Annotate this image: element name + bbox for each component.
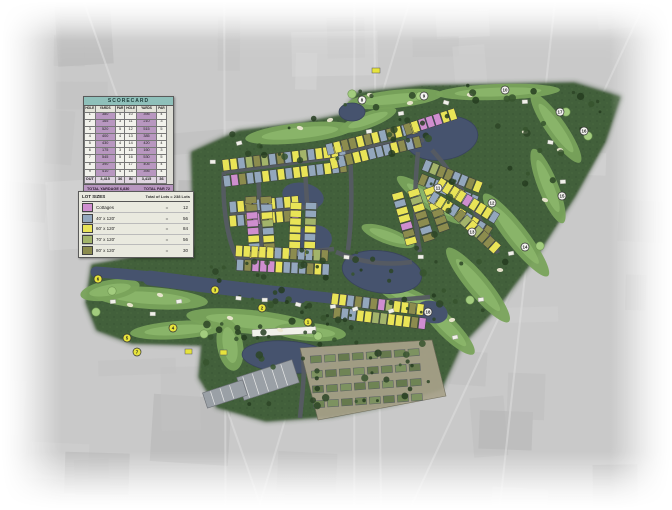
scorecard-panel: SCORECARD HOLEYARDSPARHOLEYARDSPAR138041… — [83, 96, 174, 193]
tree — [281, 153, 288, 160]
tree — [398, 118, 401, 121]
building — [366, 129, 372, 134]
tree — [541, 121, 546, 126]
tree — [258, 324, 263, 329]
scorecard-title: SCORECARD — [84, 97, 173, 106]
aerial-block — [412, 36, 459, 57]
residential-lot — [356, 310, 364, 322]
residential-lot — [354, 296, 362, 308]
scorecard-cell: 4 — [157, 163, 167, 170]
residential-lot — [291, 262, 298, 274]
residential-lot — [237, 157, 245, 169]
villa-block — [326, 384, 337, 392]
residential-lot — [305, 218, 316, 225]
tree — [526, 172, 530, 176]
tree — [288, 126, 291, 129]
residential-lot — [364, 311, 372, 323]
tree — [266, 401, 271, 406]
tree — [390, 137, 396, 143]
tree — [507, 166, 512, 171]
tree — [406, 359, 410, 363]
lot-count: 56 — [174, 237, 190, 242]
legend-rows: Cottages=1240' x 120'=5660' x 120'=8470'… — [82, 203, 190, 256]
lot-count: 84 — [174, 226, 190, 231]
legend-title: LOT SIZES — [82, 194, 105, 199]
tree — [315, 386, 321, 392]
tree — [432, 293, 436, 297]
tree — [436, 300, 443, 307]
residential-lot — [260, 196, 272, 204]
tree — [317, 342, 322, 347]
tree — [220, 322, 224, 326]
residential-lot — [305, 210, 316, 217]
tree — [389, 300, 394, 305]
residential-lot — [269, 169, 277, 181]
residential-lot — [305, 202, 316, 209]
tree — [273, 290, 278, 295]
villa-block — [352, 352, 363, 360]
building — [150, 312, 156, 316]
residential-lot — [285, 167, 293, 179]
tree — [410, 155, 413, 158]
tree — [374, 349, 381, 356]
residential-lot — [324, 163, 332, 175]
scorecard-cell: 430 — [96, 141, 116, 148]
scorecard-cell: 36 — [157, 177, 167, 184]
tree — [314, 368, 319, 373]
scorecard-cell: 5 — [85, 141, 96, 148]
scorecard-cell: 8 — [85, 163, 96, 170]
scorecard-cell: 16 — [125, 155, 136, 162]
tree — [267, 302, 273, 308]
tree — [259, 145, 262, 148]
tree — [427, 380, 430, 383]
tree — [322, 394, 329, 401]
tree — [261, 274, 267, 280]
tree — [362, 399, 366, 403]
tree — [414, 246, 419, 251]
putting-green — [200, 330, 208, 338]
building — [508, 251, 514, 256]
tree — [430, 182, 433, 185]
tree — [349, 325, 354, 330]
residential-lot — [261, 204, 273, 212]
hole-number: 14 — [523, 245, 528, 250]
scorecard-cell: 390 — [96, 163, 116, 170]
aerial-block — [276, 451, 337, 494]
scorecard-cell: 10 — [125, 113, 136, 120]
equals-sign: = — [163, 248, 171, 253]
hole-marker: 14 — [521, 243, 529, 251]
tee-box — [185, 349, 192, 354]
scorecard-cell: 4 — [157, 170, 167, 177]
tree — [399, 363, 402, 366]
hole-marker: 9 — [420, 92, 428, 100]
residential-lot — [243, 246, 250, 258]
residential-lot — [222, 159, 230, 171]
scorecard-cell: 405 — [137, 163, 157, 170]
tree — [299, 248, 304, 253]
tree — [354, 340, 358, 344]
tree — [332, 337, 337, 342]
hole-marker: 3 — [211, 286, 219, 294]
tree — [434, 260, 437, 263]
villa-block — [340, 383, 351, 391]
tree — [264, 260, 270, 266]
aerial-block — [160, 366, 201, 431]
aerial-block — [98, 358, 176, 377]
aerial-block — [593, 464, 639, 510]
residential-lot — [346, 295, 354, 307]
scorecard-cell: 385 — [137, 134, 157, 141]
scorecard-cell: 4 — [116, 141, 126, 148]
building — [478, 297, 484, 301]
tree — [335, 316, 342, 323]
scorecard-cell: 2 — [85, 120, 96, 127]
villa-block — [410, 378, 421, 386]
lot-color-swatch — [82, 224, 93, 233]
scorecard-cell: 210 — [137, 120, 157, 127]
building — [344, 255, 350, 259]
villa-block — [369, 396, 380, 404]
villa-block — [325, 369, 336, 377]
residential-lot — [293, 166, 301, 178]
tree — [489, 185, 493, 189]
tree — [256, 273, 260, 277]
hole-marker: 5 — [123, 334, 131, 342]
villa-block — [338, 353, 349, 361]
tree — [300, 310, 304, 314]
tree — [311, 116, 317, 122]
aerial-block — [452, 44, 487, 90]
tree — [261, 152, 267, 158]
lot-count: 30 — [174, 248, 190, 253]
building — [418, 255, 424, 259]
building — [398, 111, 404, 116]
residential-lot — [408, 303, 416, 315]
tree — [596, 100, 599, 103]
tree — [409, 92, 416, 99]
aerial-block — [435, 9, 489, 39]
residential-lot — [246, 212, 258, 220]
lot-size-label: 70' x 120' — [96, 237, 160, 242]
tree — [310, 397, 316, 403]
residential-lot — [403, 316, 411, 328]
residential-lot — [274, 247, 281, 259]
residential-lot — [268, 153, 276, 165]
scorecard-cell: 13 — [125, 134, 136, 141]
villa-block — [327, 399, 338, 407]
residential-lot — [300, 166, 308, 178]
tree — [403, 351, 410, 358]
scorecard-cell: 160 — [137, 148, 157, 155]
residential-lot — [245, 196, 257, 204]
residential-lot — [229, 201, 237, 213]
tree — [203, 359, 209, 365]
villa-block — [339, 368, 350, 376]
aerial-block — [625, 275, 646, 311]
aerial-block — [596, 0, 644, 30]
residential-lot — [236, 259, 243, 271]
scorecard-cell: 545 — [96, 155, 116, 162]
residential-lot — [418, 317, 426, 329]
hole-marker: 1 — [304, 318, 312, 326]
residential-lot — [248, 235, 260, 243]
tee-box — [220, 350, 227, 355]
building — [262, 298, 268, 302]
tree — [251, 259, 257, 265]
residential-lot — [304, 226, 315, 233]
scorecard-cell: 15 — [125, 148, 136, 155]
residential-lot — [316, 164, 324, 176]
putting-green — [92, 308, 100, 316]
tree — [446, 193, 454, 201]
residential-lot — [304, 234, 315, 241]
villa-block — [396, 379, 407, 387]
tree — [323, 275, 329, 281]
scorecard-cell: 3 — [116, 120, 126, 127]
scorecard-cell: 4 — [85, 134, 96, 141]
building — [210, 160, 216, 164]
tree — [241, 335, 247, 341]
aerial-block — [489, 486, 549, 510]
tree — [278, 153, 281, 156]
lot-count: 56 — [174, 216, 190, 221]
scorecard-cell: 5 — [116, 155, 126, 162]
scorecard-cell: 4 — [157, 134, 167, 141]
tree — [208, 334, 214, 340]
building — [547, 140, 553, 145]
tree — [314, 402, 321, 409]
aerial-block — [64, 452, 130, 495]
tree — [358, 90, 362, 94]
legend-header: LOT SIZES Total of Lots = 238 Lots — [82, 194, 190, 202]
villa-block — [408, 349, 419, 357]
tree — [447, 201, 450, 204]
tree — [306, 303, 312, 309]
scorecard-cell: 4 — [116, 163, 126, 170]
tree — [459, 262, 463, 266]
residential-lot — [308, 165, 316, 177]
tree — [522, 181, 525, 184]
residential-lot — [315, 148, 323, 160]
tree — [376, 399, 379, 402]
hole-marker: 4 — [169, 324, 177, 332]
residential-lot — [276, 211, 284, 223]
scorecard-cell: 11 — [125, 120, 136, 127]
residential-lot — [284, 196, 292, 208]
villa-block — [368, 381, 379, 389]
residential-lot — [254, 171, 262, 183]
aerial-block — [291, 31, 378, 77]
tree — [389, 269, 393, 273]
tree — [370, 371, 373, 374]
putting-green — [466, 296, 474, 304]
residential-lot — [237, 214, 245, 226]
residential-lot — [261, 212, 273, 220]
scorecard-cell: 530 — [137, 155, 157, 162]
scorecard-cell: 4 — [157, 113, 167, 120]
tree — [530, 88, 537, 95]
residential-lot — [372, 312, 380, 324]
tree — [355, 251, 358, 254]
residential-lot — [289, 226, 300, 233]
tree — [352, 256, 359, 263]
tree — [408, 387, 413, 392]
tree — [370, 257, 375, 262]
tree — [278, 287, 285, 294]
building — [176, 299, 182, 304]
aerial-block — [54, 35, 86, 66]
building — [236, 296, 242, 300]
tree — [222, 265, 226, 269]
hole-marker: 15 — [558, 192, 566, 200]
scorecard-total-yardage: TOTAL YARDAGE 6,830 — [87, 187, 129, 191]
legend-row: 60' x 120'=84 — [82, 224, 190, 235]
scorecard-cell: 515 — [137, 127, 157, 134]
tree — [245, 150, 251, 156]
tree — [469, 89, 476, 96]
tree — [442, 288, 446, 292]
aerial-block — [284, 494, 365, 510]
residential-lot — [370, 298, 378, 310]
tree — [335, 156, 339, 160]
residential-lot — [290, 248, 297, 260]
residential-lot — [238, 173, 246, 185]
residential-lot — [379, 313, 387, 325]
residential-lot — [362, 297, 370, 309]
residential-lot — [322, 264, 329, 276]
residential-lot — [410, 317, 418, 329]
residential-lot — [251, 246, 258, 258]
aerial-block — [218, 16, 241, 71]
tree — [388, 150, 395, 157]
residential-lot — [313, 249, 320, 261]
scorecard-cell: 18 — [125, 170, 136, 177]
residential-lot — [259, 246, 266, 258]
residential-lot — [290, 218, 301, 225]
tree — [558, 150, 565, 157]
hole-number: 12 — [490, 201, 495, 206]
hole-marker: 13 — [468, 228, 476, 236]
villa-block — [341, 398, 352, 406]
tree — [289, 318, 296, 325]
scorecard-total-par: TOTAL PAR 72 — [144, 187, 170, 191]
tree — [260, 329, 266, 335]
scorecard-cell: 4 — [116, 113, 126, 120]
residential-lot — [262, 170, 270, 182]
tree — [361, 374, 368, 381]
residential-lot — [282, 248, 289, 260]
tree — [404, 117, 410, 123]
tree — [577, 93, 584, 100]
villa-block — [381, 365, 392, 373]
tree — [495, 123, 501, 129]
tree — [369, 94, 373, 98]
residential-lot — [231, 174, 239, 186]
tree — [476, 259, 482, 265]
legend-row: Cottages=12 — [82, 203, 190, 214]
tree — [349, 314, 352, 317]
residential-lot — [289, 234, 300, 241]
tree — [247, 402, 251, 406]
scorecard-cell: 9 — [85, 170, 96, 177]
tree — [572, 91, 575, 94]
tree — [343, 103, 346, 106]
equals-sign: = — [163, 237, 171, 242]
hole-marker: 11 — [434, 184, 442, 192]
lot-color-swatch — [82, 246, 93, 255]
residential-lot — [306, 263, 313, 275]
residential-lot — [246, 204, 258, 212]
residential-lot — [245, 156, 253, 168]
tree — [203, 321, 211, 329]
tree — [369, 356, 372, 359]
building — [110, 300, 116, 304]
legend-row: 40' x 120'=56 — [82, 213, 190, 224]
tree — [420, 269, 427, 276]
scorecard-cell: 3,415 — [96, 177, 116, 184]
tree — [256, 351, 264, 359]
scorecard-cell: 3 — [157, 148, 167, 155]
tree — [420, 311, 423, 314]
residential-lot — [331, 293, 339, 305]
residential-lot — [246, 172, 254, 184]
scorecard-cell: 5 — [157, 155, 167, 162]
scorecard-cell: 7 — [85, 155, 96, 162]
residential-lot — [277, 168, 285, 180]
aerial-block — [617, 199, 668, 243]
tree — [217, 278, 222, 283]
scorecard-cell: 6 — [85, 148, 96, 155]
residential-lot — [377, 299, 385, 311]
tree — [301, 357, 305, 361]
residential-lot — [230, 158, 238, 170]
aerial-block — [0, 180, 48, 223]
scorecard-cell: 175 — [96, 148, 116, 155]
lot-legend-panel: LOT SIZES Total of Lots = 238 Lots Cotta… — [78, 191, 194, 258]
tree — [453, 179, 457, 183]
tree — [420, 120, 425, 125]
scorecard-cell: 380 — [96, 113, 116, 120]
scorecard-cell: OUT — [85, 177, 96, 184]
putting-green — [348, 90, 356, 98]
hole-marker: 17 — [556, 108, 564, 116]
tree — [402, 393, 409, 400]
hole-marker: 10 — [501, 86, 509, 94]
hole-number: 13 — [470, 230, 475, 235]
scorecard-cell: 1 — [85, 113, 96, 120]
residential-lot — [283, 262, 290, 274]
tree — [445, 114, 450, 119]
villa-block — [380, 350, 391, 358]
residential-lot — [416, 303, 424, 315]
lake-pond-nw — [339, 103, 365, 121]
residential-lot — [235, 245, 242, 257]
tree — [431, 231, 438, 238]
scorecard-cell: 4 — [157, 141, 167, 148]
lot-color-swatch — [82, 214, 93, 223]
residential-lot — [275, 261, 282, 273]
scorecard-cell: 520 — [96, 127, 116, 134]
tree — [406, 307, 409, 310]
tree — [297, 157, 303, 163]
residential-lot — [387, 314, 395, 326]
scorecard-cell: 3 — [85, 127, 96, 134]
equals-sign: = — [163, 205, 171, 210]
residential-lot — [244, 260, 251, 272]
residential-lot — [223, 175, 231, 187]
